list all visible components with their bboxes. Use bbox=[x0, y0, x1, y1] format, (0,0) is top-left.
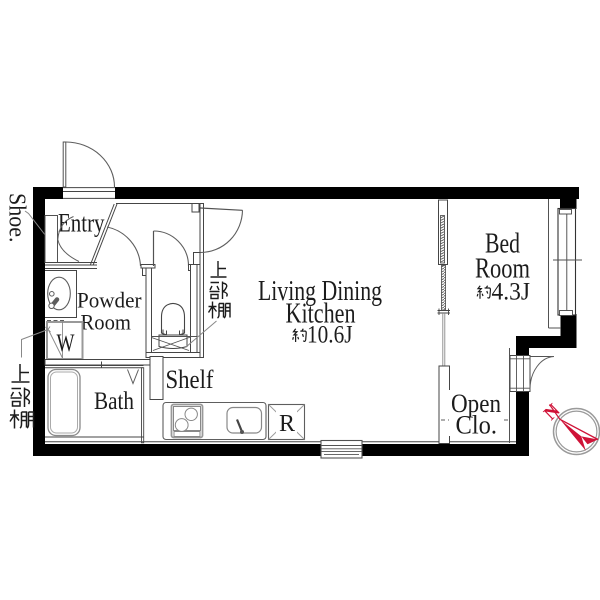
svg-text:Shelf: Shelf bbox=[166, 365, 214, 394]
svg-text:Entry: Entry bbox=[58, 209, 105, 238]
svg-text:4.3J: 4.3J bbox=[492, 279, 531, 306]
svg-text:W: W bbox=[57, 330, 75, 357]
svg-text:Bath: Bath bbox=[94, 388, 134, 415]
svg-text:R: R bbox=[279, 411, 295, 437]
svg-text:Clo.: Clo. bbox=[456, 411, 498, 440]
svg-text:Shoe.: Shoe. bbox=[4, 193, 31, 243]
svg-text:Room: Room bbox=[81, 310, 132, 335]
svg-text:10.6J: 10.6J bbox=[307, 322, 353, 349]
